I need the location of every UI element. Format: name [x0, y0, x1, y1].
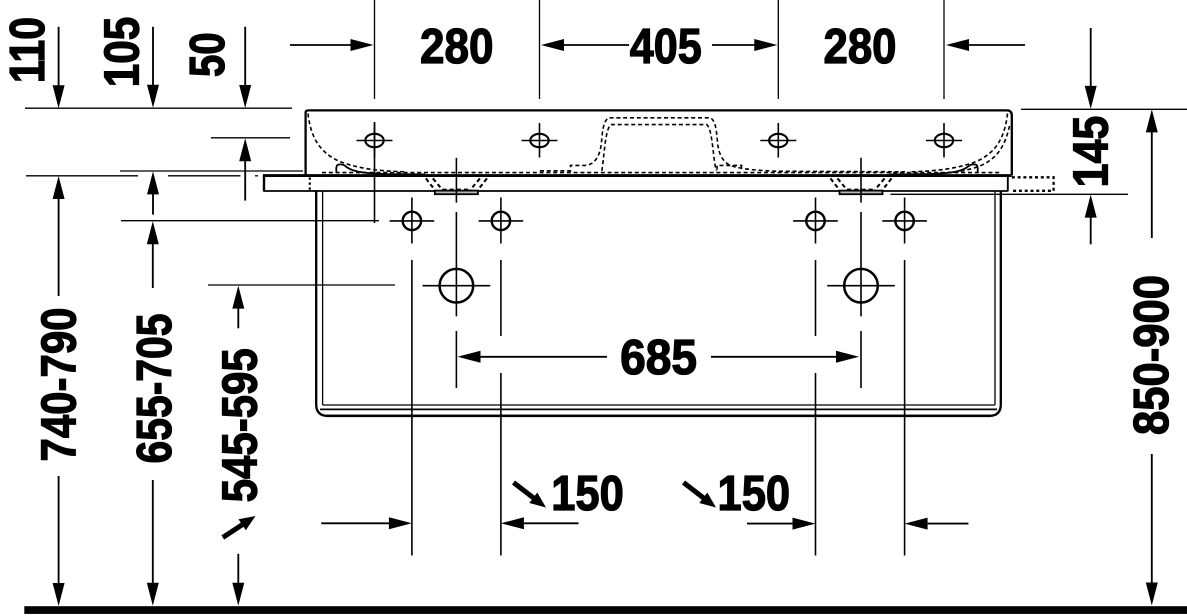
- svg-text:150: 150: [551, 466, 624, 521]
- svg-text:280: 280: [824, 19, 897, 74]
- svg-text:850-900: 850-900: [1124, 275, 1179, 435]
- svg-text:145: 145: [1064, 116, 1119, 188]
- svg-text:740-790: 740-790: [32, 308, 87, 462]
- svg-text:655-705: 655-705: [127, 314, 182, 464]
- svg-text:150: 150: [718, 466, 791, 521]
- svg-text:110: 110: [0, 17, 55, 83]
- svg-text:405: 405: [630, 19, 702, 74]
- svg-text:685: 685: [620, 330, 697, 385]
- svg-text:280: 280: [420, 19, 494, 74]
- svg-text:545-595: 545-595: [212, 348, 267, 502]
- svg-text:105: 105: [95, 17, 150, 88]
- svg-text:50: 50: [180, 32, 235, 77]
